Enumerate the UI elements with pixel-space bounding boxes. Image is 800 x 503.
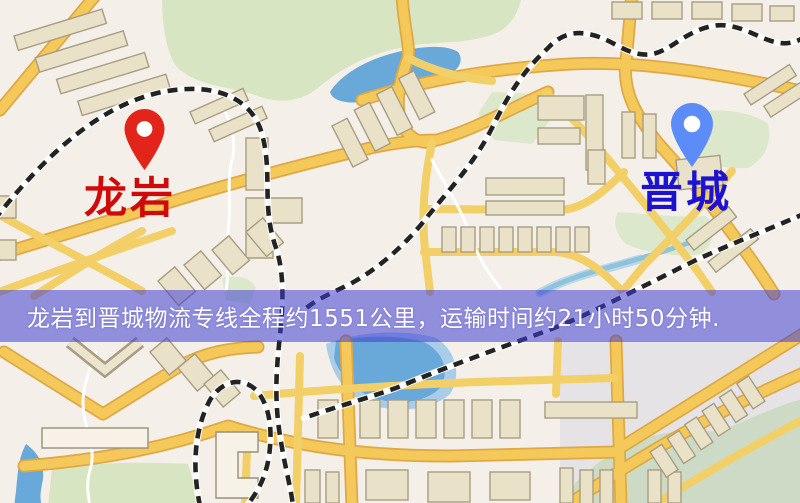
route-info-text: 龙岩到晋城物流专线全程约1551公里，运输时间约21小时50分钟. [27, 299, 720, 333]
route-info-banner: 龙岩到晋城物流专线全程约1551公里，运输时间约21小时50分钟. [0, 290, 800, 342]
logistics-route-map: 龙岩 晋城 龙岩到晋城物流专线全程约1551公里，运输时间约21小时50分钟. [0, 0, 800, 503]
destination-pin-icon [668, 103, 716, 167]
origin-city-label: 龙岩 [84, 178, 176, 221]
park-area [48, 463, 200, 503]
map-background [0, 0, 800, 503]
river [14, 444, 43, 503]
destination-city-label: 晋城 [640, 172, 732, 215]
origin-pin-icon [122, 109, 167, 170]
